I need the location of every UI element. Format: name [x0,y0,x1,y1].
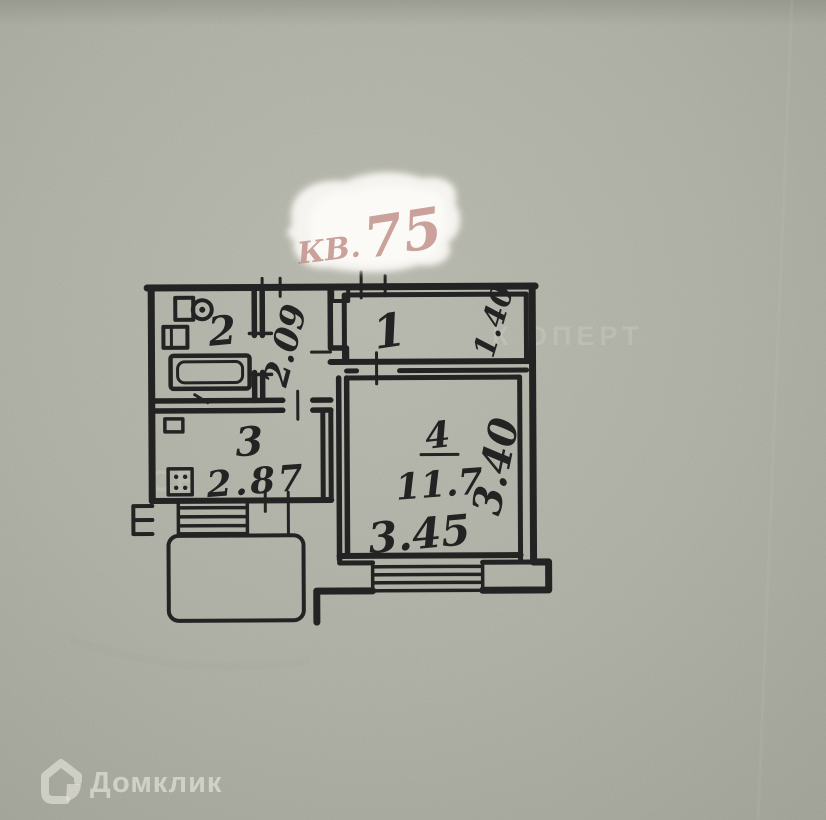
correction-patch: КВ. 75 [287,172,460,272]
photographed-floor-plan: К ОПЕРТ СЕ [0,0,826,820]
wall-left [151,288,152,501]
room-3-dim-label: 2.87 [204,457,308,506]
top-edge-shadow [0,0,826,26]
room-4-label: 4 [423,413,453,457]
watermark-fragment-right: К ОПЕРТ [492,321,644,351]
room-2-label: 2 [205,306,238,355]
paper-background [0,0,826,820]
room-3-label: 3 [234,418,265,467]
wall-right [532,286,533,562]
toilet-bowl-center [199,307,205,313]
floor-plan-canvas: К ОПЕРТ СЕ [0,0,826,820]
paper-grain-light [0,0,826,820]
room-4-width-label: 3.45 [366,505,472,563]
apartment-number-value: 75 [359,195,446,272]
wall-room1-bottom-outer [331,361,533,362]
domclick-logo-text: Домклик [90,767,222,799]
